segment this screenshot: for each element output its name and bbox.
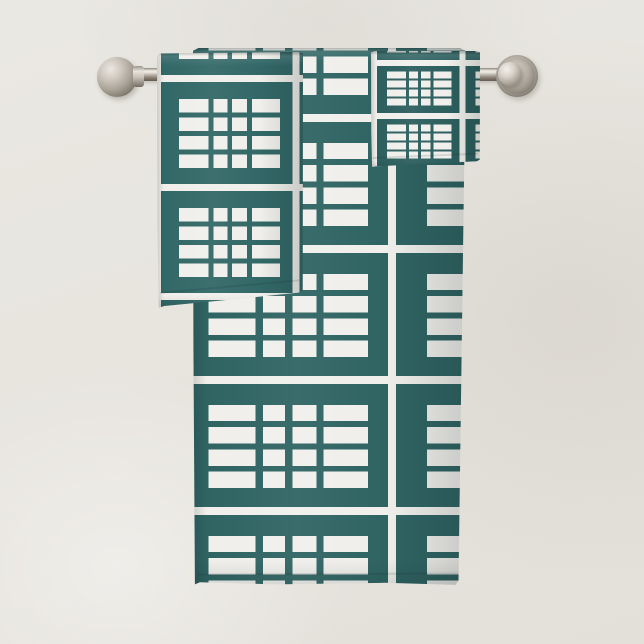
towel-bar-right-finial-ball xyxy=(498,62,522,86)
washcloth xyxy=(371,51,480,167)
towel-bar-left-finial xyxy=(97,57,137,97)
towel-bar-left-collar xyxy=(133,66,144,87)
hand-towel-pattern xyxy=(157,52,303,308)
washcloth-pattern xyxy=(371,51,480,167)
hand-towel xyxy=(157,52,303,308)
scene xyxy=(0,0,644,644)
